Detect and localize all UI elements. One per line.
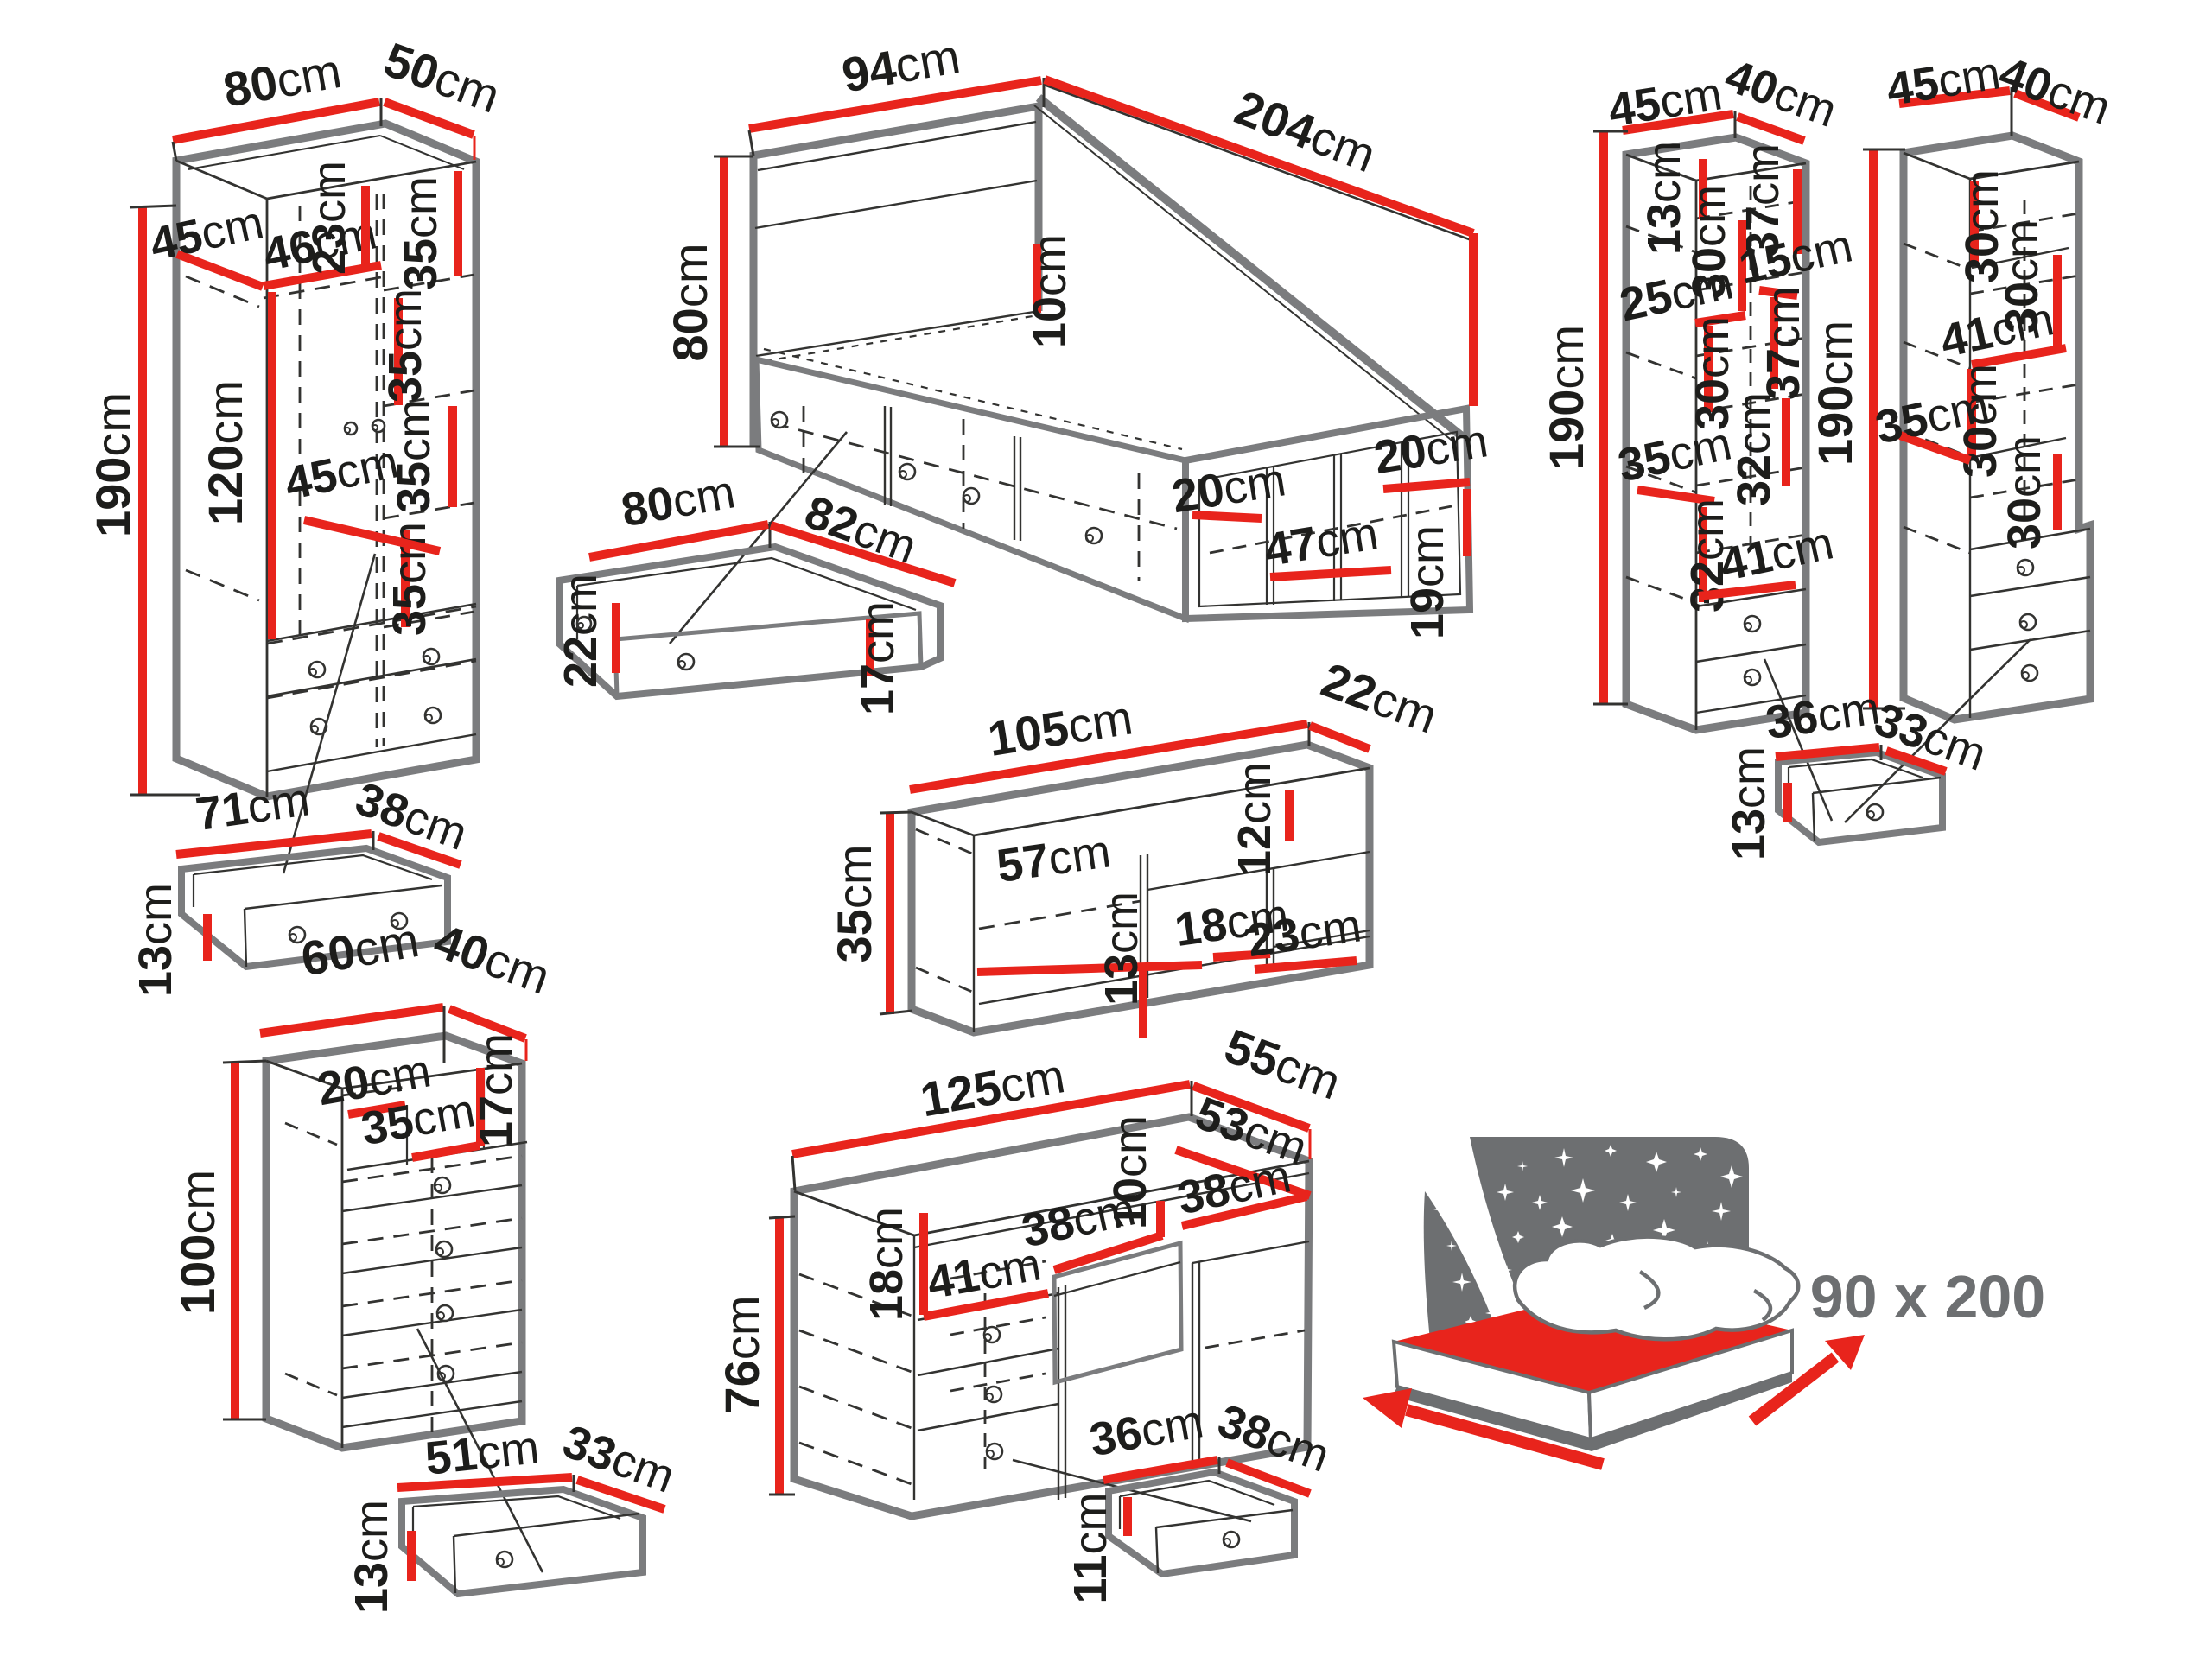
svg-text:35cm: 35cm [395, 176, 447, 290]
svg-text:13cm: 13cm [130, 883, 181, 997]
svg-text:35cm: 35cm [827, 845, 881, 963]
svg-text:190cm: 190cm [1539, 325, 1593, 470]
svg-text:30cm: 30cm [1999, 435, 2050, 549]
svg-text:190cm: 190cm [86, 392, 140, 537]
svg-text:80cm: 80cm [663, 244, 717, 362]
svg-text:13cm: 13cm [1638, 141, 1690, 255]
svg-text:10cm: 10cm [1024, 234, 1076, 348]
svg-text:120cm: 120cm [198, 380, 252, 525]
svg-text:17cm: 17cm [470, 1033, 522, 1147]
svg-text:32cm: 32cm [1728, 392, 1780, 506]
svg-text:13cm: 13cm [1723, 746, 1775, 860]
svg-text:22cm: 22cm [555, 574, 607, 688]
svg-text:37cm: 37cm [1758, 286, 1809, 400]
svg-text:13cm: 13cm [346, 1500, 397, 1614]
svg-text:10cm: 10cm [1104, 1115, 1156, 1229]
svg-text:19cm: 19cm [1402, 525, 1453, 639]
svg-text:100cm: 100cm [170, 1170, 225, 1315]
svg-text:23cm: 23cm [303, 161, 355, 275]
svg-text:17cm: 17cm [852, 601, 904, 715]
svg-text:11cm: 11cm [1065, 1492, 1116, 1603]
svg-text:13cm: 13cm [1096, 892, 1147, 1006]
svg-text:76cm: 76cm [715, 1296, 769, 1414]
svg-text:18cm: 18cm [861, 1207, 912, 1321]
svg-text:90 x 200: 90 x 200 [1810, 1263, 2045, 1330]
svg-text:12cm: 12cm [1229, 762, 1281, 876]
svg-text:35cm: 35cm [379, 289, 431, 403]
svg-text:190cm: 190cm [1808, 321, 1862, 466]
